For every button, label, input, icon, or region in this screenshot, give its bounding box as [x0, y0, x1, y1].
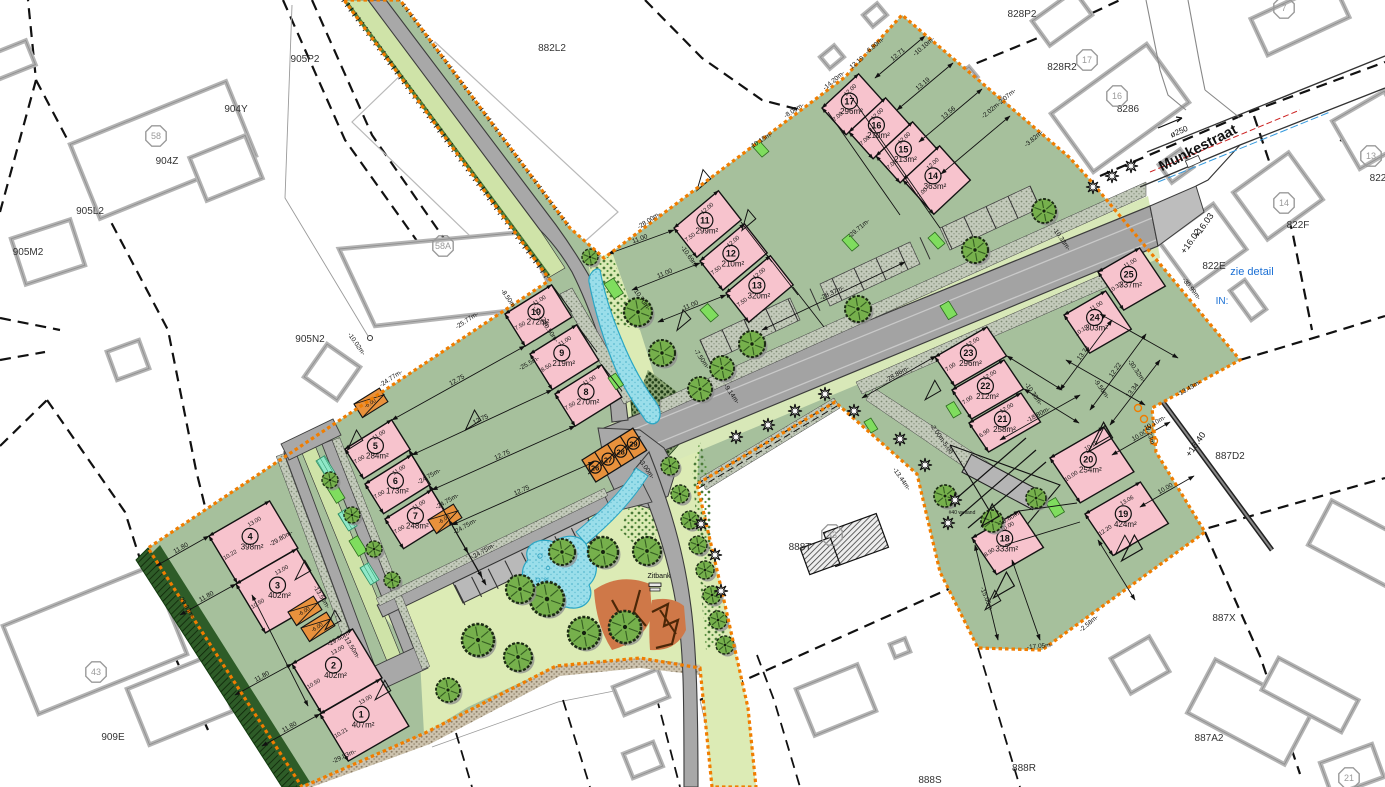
svg-text:320m²: 320m²: [748, 291, 771, 300]
svg-text:887X: 887X: [1212, 613, 1236, 624]
svg-text:887D2: 887D2: [1215, 451, 1245, 462]
svg-text:1: 1: [359, 710, 364, 720]
svg-text:219m²: 219m²: [552, 359, 575, 368]
svg-text:303m²: 303m²: [1085, 323, 1108, 332]
svg-text:888R: 888R: [1012, 763, 1036, 774]
svg-text:398m²: 398m²: [241, 542, 264, 551]
svg-text:905M2: 905M2: [13, 247, 44, 258]
svg-text:IN:: IN:: [1216, 296, 1229, 307]
svg-text:822: 822: [1370, 173, 1385, 184]
svg-text:887A2: 887A2: [1195, 733, 1224, 744]
svg-text:212m²: 212m²: [976, 392, 999, 401]
svg-text:402m²: 402m²: [268, 591, 291, 600]
svg-text:904Z: 904Z: [156, 156, 179, 167]
svg-text:14: 14: [928, 171, 938, 181]
svg-text:828R2: 828R2: [1047, 62, 1077, 73]
svg-text:905P2: 905P2: [291, 54, 320, 65]
svg-text:5: 5: [373, 441, 378, 451]
svg-text:822F: 822F: [1287, 220, 1310, 231]
svg-text:904Y: 904Y: [224, 104, 248, 115]
svg-text:909E: 909E: [101, 732, 125, 743]
svg-text:16: 16: [1112, 91, 1122, 101]
svg-text:424m²: 424m²: [1114, 520, 1137, 529]
svg-text:905L2: 905L2: [76, 206, 104, 217]
svg-text:43: 43: [91, 667, 101, 677]
svg-text:882L2: 882L2: [538, 43, 566, 54]
svg-text:4: 4: [248, 532, 253, 542]
svg-text:337m²: 337m²: [1119, 280, 1142, 289]
svg-text:828P2: 828P2: [1008, 9, 1037, 20]
svg-text:19: 19: [1118, 509, 1128, 519]
svg-text:7: 7: [413, 511, 418, 521]
svg-text:888S: 888S: [918, 775, 942, 786]
svg-text:173m²: 173m²: [386, 487, 409, 496]
svg-text:254m²: 254m²: [1079, 466, 1102, 475]
svg-text:3: 3: [275, 580, 280, 590]
svg-text:33: 33: [827, 530, 837, 540]
svg-text:270m²: 270m²: [577, 398, 600, 407]
svg-text:284m²: 284m²: [366, 452, 389, 461]
svg-text:822E: 822E: [1202, 261, 1226, 272]
svg-text:296m²: 296m²: [959, 359, 982, 368]
svg-text:20: 20: [1083, 455, 1093, 465]
svg-text:17: 17: [1082, 55, 1092, 65]
svg-text:27: 27: [604, 455, 612, 464]
svg-text:16: 16: [871, 120, 881, 130]
svg-text:58: 58: [151, 131, 161, 141]
svg-text:17: 17: [844, 96, 854, 106]
svg-text:#40 weiland: #40 weiland: [949, 510, 976, 516]
svg-text:6: 6: [393, 476, 398, 486]
svg-text:58A: 58A: [435, 241, 451, 251]
svg-text:13: 13: [1366, 151, 1376, 161]
svg-text:299m²: 299m²: [696, 226, 719, 235]
svg-text:26: 26: [591, 463, 599, 472]
svg-text:210m²: 210m²: [722, 259, 745, 268]
svg-text:402m²: 402m²: [324, 671, 347, 680]
svg-text:8: 8: [583, 387, 588, 397]
svg-text:25: 25: [1124, 270, 1134, 280]
svg-text:248m²: 248m²: [406, 522, 429, 531]
svg-text:2: 2: [331, 660, 336, 670]
svg-text:21: 21: [997, 414, 1007, 424]
svg-text:13: 13: [752, 281, 762, 291]
svg-text:11: 11: [700, 216, 710, 226]
svg-text:407m²: 407m²: [352, 720, 375, 729]
svg-text:22: 22: [980, 381, 990, 391]
svg-text:14: 14: [1279, 198, 1289, 208]
svg-text:15: 15: [898, 144, 908, 154]
svg-text:7: 7: [1281, 3, 1286, 13]
svg-text:12: 12: [726, 249, 736, 259]
svg-text:zie detail: zie detail: [1230, 266, 1273, 278]
svg-text:18: 18: [1000, 534, 1010, 544]
svg-text:888T: 888T: [789, 542, 812, 553]
svg-text:21: 21: [1344, 773, 1354, 783]
svg-text:23: 23: [963, 348, 973, 358]
svg-text:28: 28: [617, 447, 625, 456]
svg-text:24: 24: [1090, 313, 1100, 323]
svg-text:Zitbank: Zitbank: [648, 573, 671, 580]
svg-text:333m²: 333m²: [995, 544, 1018, 553]
svg-text:29: 29: [629, 439, 637, 448]
svg-text:9: 9: [559, 348, 564, 358]
svg-text:905N2: 905N2: [295, 334, 325, 345]
